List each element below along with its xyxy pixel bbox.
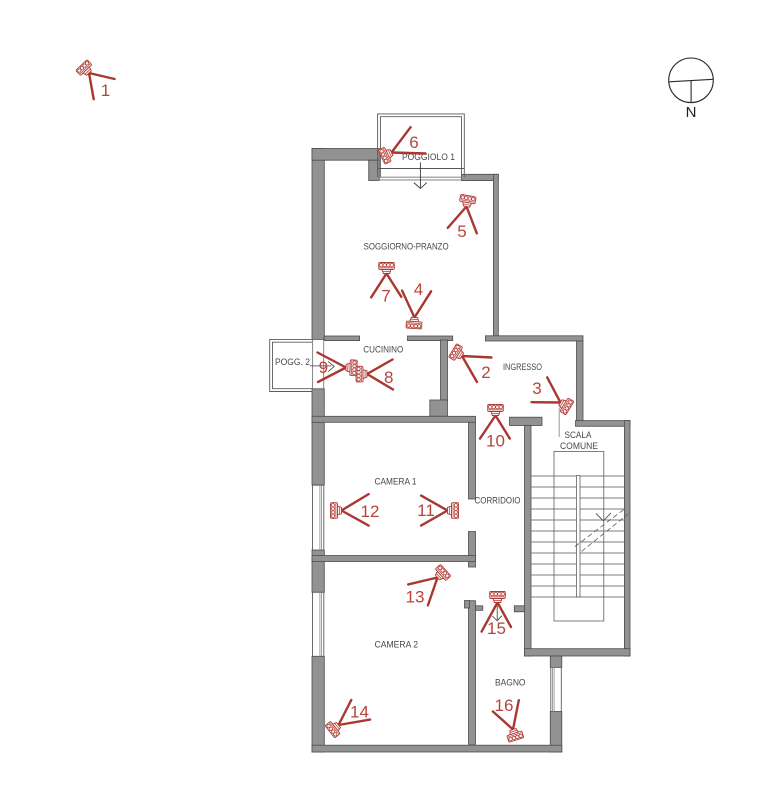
svg-text:7: 7 [381, 287, 390, 306]
svg-text:BAGNO: BAGNO [495, 678, 526, 688]
svg-text:14: 14 [350, 703, 369, 722]
svg-text:11: 11 [417, 501, 435, 520]
svg-text:3: 3 [532, 379, 541, 398]
svg-text:12: 12 [361, 502, 380, 521]
svg-text:CAMERA 1: CAMERA 1 [375, 477, 417, 487]
svg-text:2: 2 [481, 363, 490, 382]
svg-text:5: 5 [457, 222, 466, 241]
svg-text:N: N [686, 104, 697, 121]
svg-text:POGG. 2: POGG. 2 [275, 357, 310, 367]
svg-text:4: 4 [414, 280, 423, 299]
svg-text:8: 8 [384, 368, 393, 387]
svg-text:SOGGIORNO-PRANZO: SOGGIORNO-PRANZO [364, 242, 449, 252]
svg-text:6: 6 [409, 133, 418, 152]
svg-text:INGRESSO: INGRESSO [503, 362, 542, 372]
svg-text:SCALA: SCALA [565, 430, 592, 440]
svg-text:CAMERA 2: CAMERA 2 [375, 640, 419, 650]
svg-text:CORRIDOIO: CORRIDOIO [475, 496, 521, 506]
svg-text:COMUNE: COMUNE [560, 441, 598, 451]
svg-text:15: 15 [487, 619, 506, 638]
svg-text:16: 16 [495, 696, 514, 715]
svg-text:CUCININO: CUCININO [363, 345, 403, 355]
svg-text:13: 13 [406, 588, 425, 607]
svg-text:1: 1 [101, 81, 110, 100]
svg-text:9: 9 [319, 358, 328, 377]
svg-text:10: 10 [486, 432, 505, 451]
